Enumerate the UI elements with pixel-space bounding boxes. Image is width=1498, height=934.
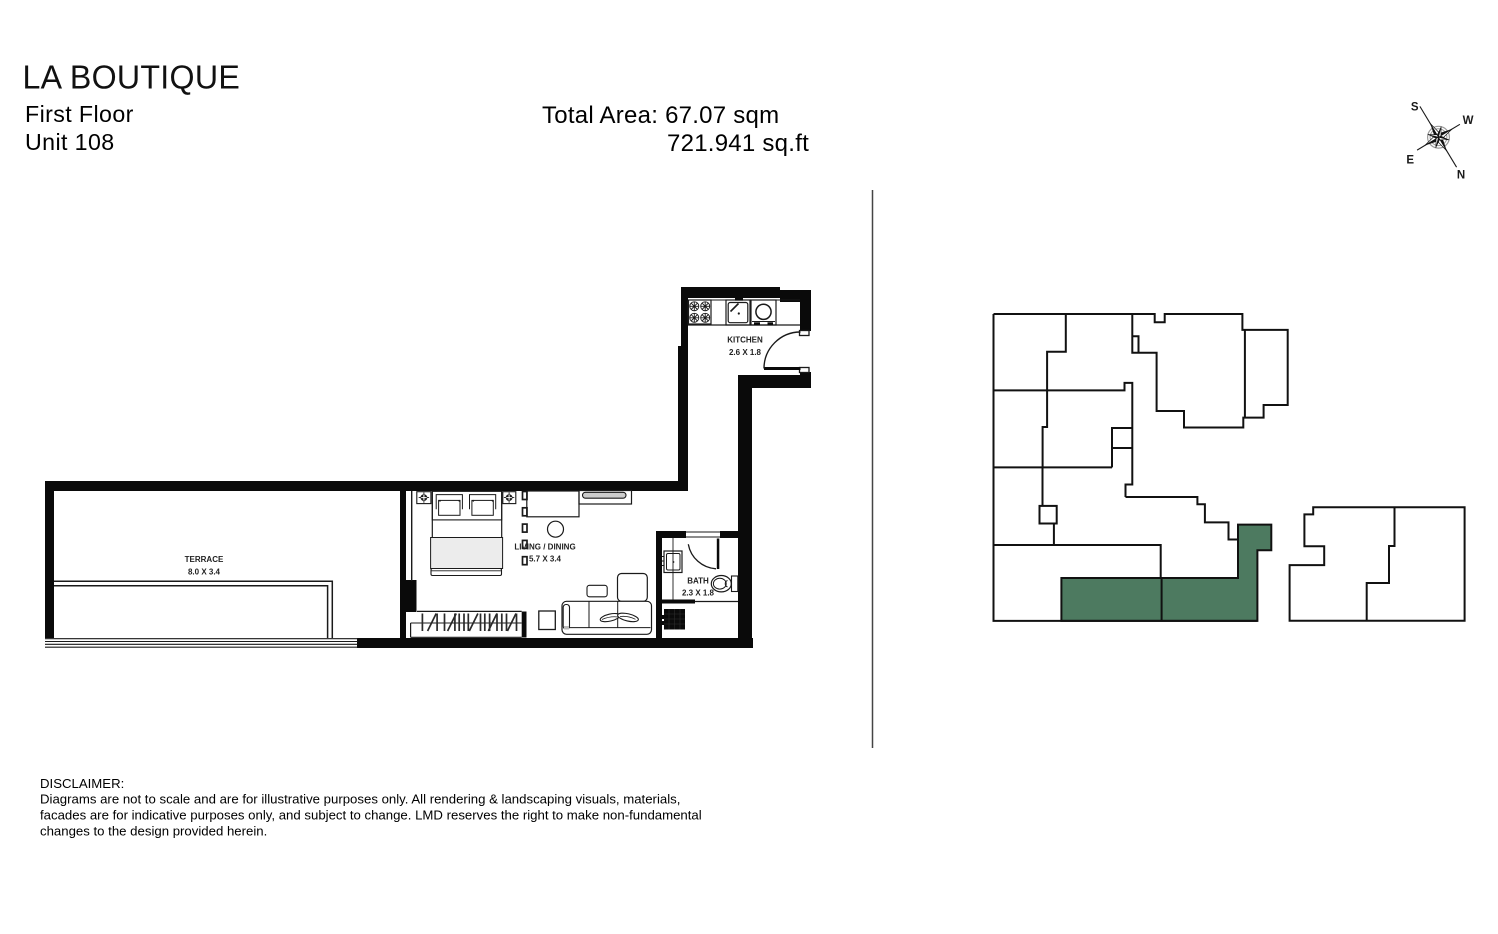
svg-text:721.941 sq.ft: 721.941 sq.ft [667,130,809,157]
svg-text:E: E [1406,155,1414,167]
svg-text:N: N [1457,170,1465,182]
svg-text:First Floor: First Floor [25,101,134,127]
svg-text:Diagrams are not to scale and: Diagrams are not to scale and are for il… [40,792,680,807]
svg-text:BATH: BATH [687,577,709,586]
svg-text:5.7 X 3.4: 5.7 X 3.4 [529,555,562,564]
svg-text:DISCLAIMER:: DISCLAIMER: [40,776,124,791]
svg-text:Unit 108: Unit 108 [25,129,115,155]
svg-text:facades are for indicative pur: facades are for indicative purposes only… [40,808,702,823]
svg-text:LA BOUTIQUE: LA BOUTIQUE [23,58,241,96]
svg-text:TERRACE: TERRACE [185,555,224,564]
svg-text:LIVING / DINING: LIVING / DINING [514,543,575,552]
svg-text:8.0 X 3.4: 8.0 X 3.4 [188,568,221,577]
svg-text:2.6 X 1.8: 2.6 X 1.8 [729,348,762,357]
svg-text:Total Area: 67.07 sqm: Total Area: 67.07 sqm [542,102,779,129]
svg-text:2.3 X 1.8: 2.3 X 1.8 [682,589,715,598]
svg-text:KITCHEN: KITCHEN [727,336,763,345]
svg-text:S: S [1411,101,1419,113]
svg-text:changes to the design provided: changes to the design provided herein. [40,824,267,839]
svg-text:W: W [1463,115,1474,127]
